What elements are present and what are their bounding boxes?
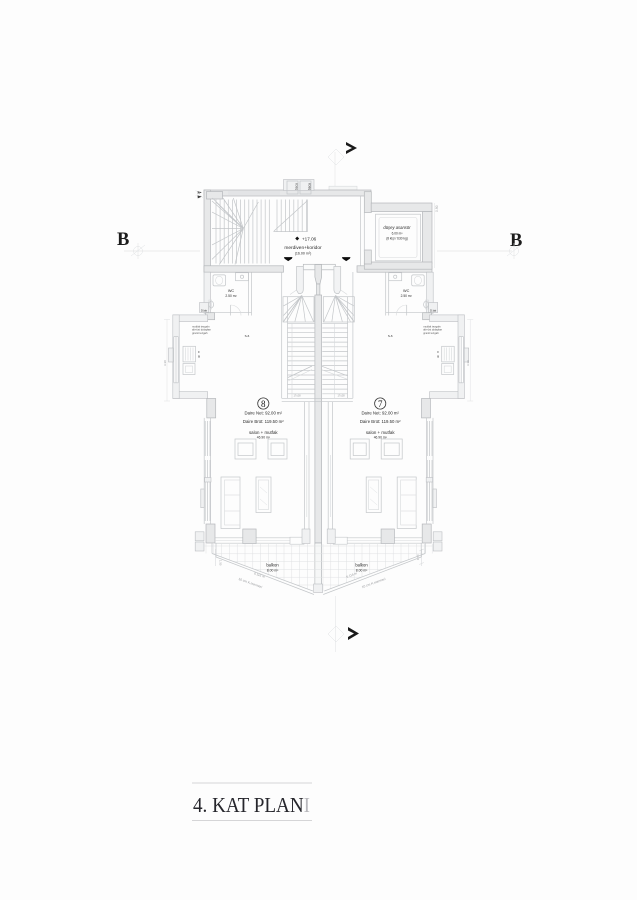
svg-text:17x28: 17x28	[293, 394, 301, 398]
svg-text:7: 7	[378, 399, 383, 409]
svg-text:8: 8	[261, 399, 266, 409]
svg-text:F: F	[437, 350, 439, 354]
svg-text:baca: baca	[308, 183, 312, 190]
svg-text:2.50 m²: 2.50 m²	[401, 294, 413, 298]
svg-text:+17.06: +17.06	[302, 237, 317, 242]
svg-text:(8 kişi / 630 kg): (8 kişi / 630 kg)	[386, 237, 408, 241]
svg-text:salon + mutfak: salon + mutfak	[366, 430, 395, 435]
svg-text:WC: WC	[228, 289, 235, 293]
svg-text:0.90: 0.90	[435, 205, 439, 212]
svg-text:granit tezgah: granit tezgah	[192, 331, 208, 335]
svg-text:B: B	[198, 355, 200, 359]
svg-text:8.00 m²: 8.00 m²	[267, 569, 279, 573]
svg-text:granit tezgah: granit tezgah	[423, 331, 439, 335]
svg-text:8.00 m²: 8.00 m²	[356, 569, 368, 573]
svg-text:B: B	[117, 230, 129, 250]
svg-text:S-6: S-6	[388, 334, 393, 338]
svg-text:4. KAT PLANI: 4. KAT PLANI	[193, 793, 310, 817]
svg-text:S-6: S-6	[245, 334, 250, 338]
svg-text:düşey asansör: düşey asansör	[383, 225, 411, 230]
svg-text:2.50 m²: 2.50 m²	[225, 294, 237, 298]
svg-text:D.lab: D.lab	[430, 309, 437, 313]
svg-text:17x28: 17x28	[337, 394, 345, 398]
svg-text:B: B	[437, 355, 439, 359]
svg-text:Daire Brüt: 119.50 m²: Daire Brüt: 119.50 m²	[360, 419, 401, 424]
svg-text:balkon: balkon	[355, 563, 368, 568]
svg-text:F: F	[198, 350, 200, 354]
svg-text:D.lab: D.lab	[201, 309, 208, 313]
svg-text:B: B	[510, 231, 522, 251]
svg-text:Daire Brüt: 119.50 m²: Daire Brüt: 119.50 m²	[243, 419, 284, 424]
svg-text:Daire Net: 92.00 m²: Daire Net: 92.00 m²	[245, 411, 283, 416]
svg-text:merdiven+koridor: merdiven+koridor	[284, 245, 322, 251]
svg-text:baca: baca	[295, 183, 299, 190]
svg-text:3.30: 3.30	[163, 360, 167, 366]
svg-text:salon + mutfak: salon + mutfak	[249, 430, 278, 435]
svg-text:Daire Net: 92.00 m²: Daire Net: 92.00 m²	[361, 411, 399, 416]
svg-text:6.00 m²: 6.00 m²	[392, 232, 403, 236]
svg-text:balkon: balkon	[266, 563, 279, 568]
svg-text:(16.00 m²): (16.00 m²)	[295, 252, 312, 256]
svg-text:3.30: 3.30	[466, 360, 470, 366]
svg-text:WC: WC	[403, 289, 410, 293]
svg-text:1.50: 1.50	[219, 560, 223, 566]
